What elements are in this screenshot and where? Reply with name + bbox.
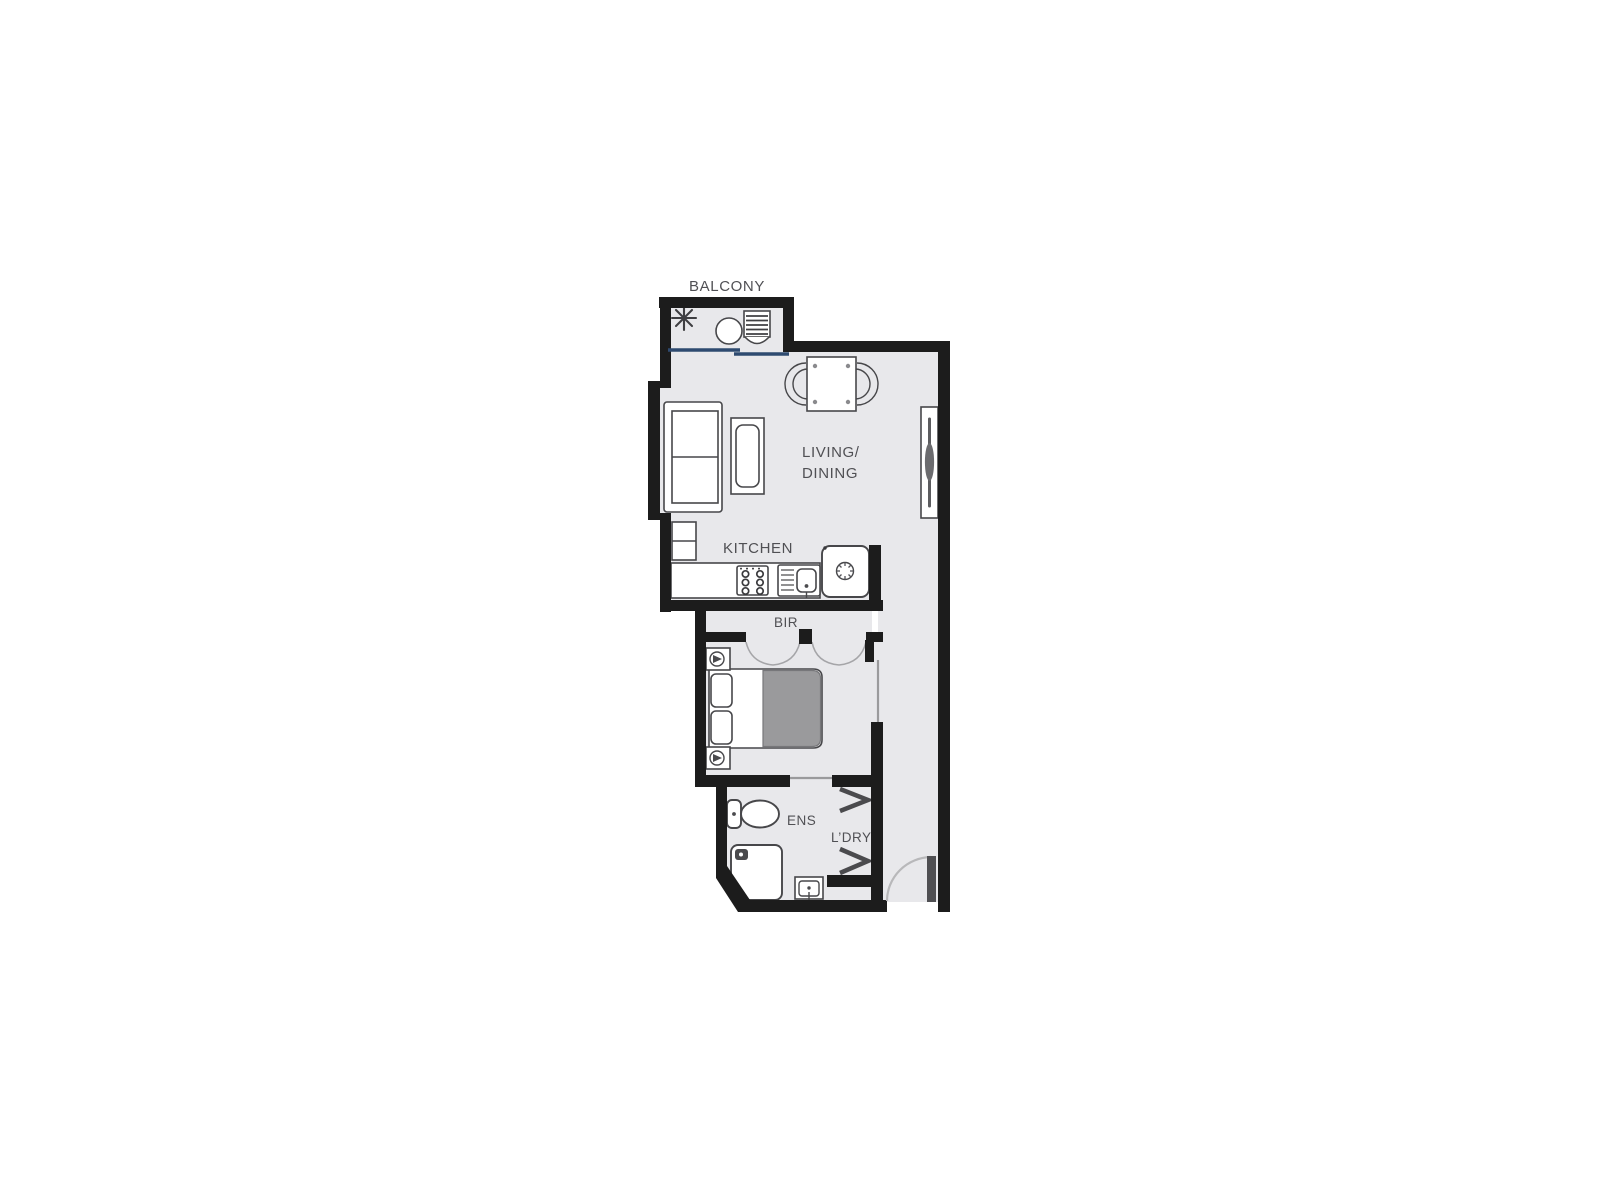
plant-icon <box>672 306 696 330</box>
floor-plan-page: BALCONY LIVING/ DINING KITCHEN BIR ENS L… <box>0 0 1600 1200</box>
bed <box>709 669 822 748</box>
living-dining-label-line2: DINING <box>802 465 858 482</box>
wall-top <box>783 341 950 352</box>
wall-left-upper <box>660 297 671 387</box>
wall-right-outer <box>938 341 950 912</box>
balcony-table <box>716 318 742 344</box>
sofa <box>664 402 722 512</box>
wall-bedroom-left <box>695 600 706 787</box>
wall-laundry-right <box>871 787 883 905</box>
tv-unit <box>921 407 938 518</box>
cooktop-icon <box>737 566 768 595</box>
wall-bir-right-return <box>865 640 874 662</box>
wall-kitchen-bottom <box>660 600 883 611</box>
entry-door-leaf <box>927 856 936 902</box>
bedside-table-bottom <box>706 747 730 769</box>
wall-bir-stub-left <box>695 632 746 642</box>
balcony-label: BALCONY <box>689 278 765 295</box>
wall-laundry-bottom <box>827 875 883 887</box>
tv-screen-bulge <box>925 443 934 481</box>
sink-icon <box>778 565 820 598</box>
wall-bedroom-bottom-right <box>832 775 883 787</box>
vanity-basin-icon <box>795 877 823 900</box>
apartment-floor-plan: BALCONY LIVING/ DINING KITCHEN BIR ENS L… <box>0 0 1600 1200</box>
balcony-chair <box>744 311 770 344</box>
wall-kitchen-right <box>869 545 881 605</box>
bedside-table-top <box>706 648 730 670</box>
kitchen-pantry <box>672 522 696 560</box>
bir-label: BIR <box>774 615 798 630</box>
pillow <box>711 711 732 744</box>
ensuite-label: ENS <box>787 813 816 828</box>
wall-bottom <box>745 900 887 912</box>
coffee-table <box>731 418 764 494</box>
pillow <box>711 674 732 707</box>
bed-blanket <box>763 671 821 747</box>
wall-left-lower <box>660 513 671 612</box>
laundry-label: L’DRY <box>831 830 872 845</box>
kitchen-label: KITCHEN <box>723 540 793 557</box>
fridge-icon <box>822 546 869 597</box>
wall-pier <box>648 381 660 520</box>
wall-ensuite-left <box>716 775 727 870</box>
wall-bir-post <box>799 629 812 644</box>
wall-balcony-top <box>659 297 794 308</box>
wall-bedroom-bottom-left <box>695 775 790 787</box>
toilet-icon <box>727 800 779 828</box>
living-dining-label-line1: LIVING/ <box>802 444 860 461</box>
